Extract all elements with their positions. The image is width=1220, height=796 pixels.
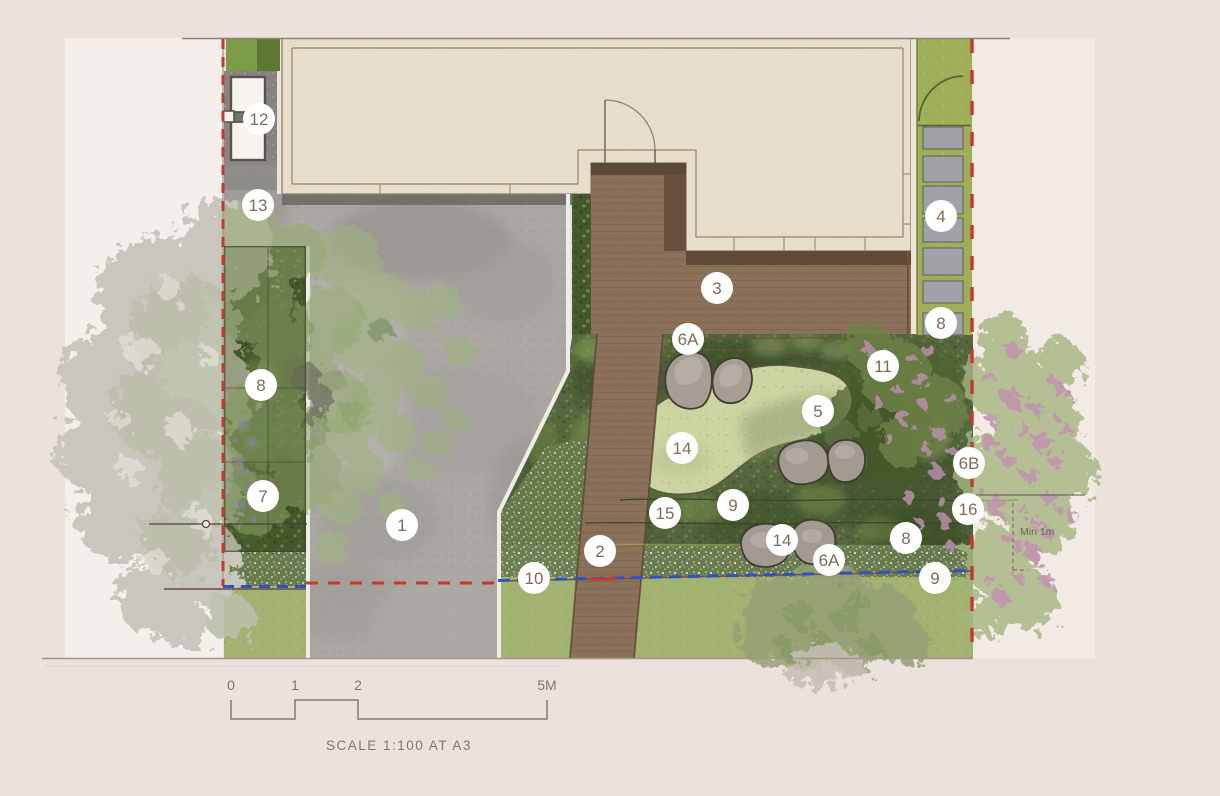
svg-text:12: 12 (250, 110, 269, 129)
svg-text:5: 5 (813, 402, 822, 421)
svg-text:8: 8 (901, 529, 910, 548)
svg-text:9: 9 (728, 496, 737, 515)
svg-text:SCALE 1:100 AT A3: SCALE 1:100 AT A3 (326, 738, 472, 753)
svg-text:14: 14 (773, 531, 792, 550)
svg-text:7: 7 (258, 487, 267, 506)
svg-text:2: 2 (354, 677, 362, 693)
svg-text:5M: 5M (537, 677, 556, 693)
svg-text:6A: 6A (678, 330, 699, 349)
svg-text:8: 8 (936, 314, 945, 333)
svg-text:1: 1 (291, 677, 299, 693)
svg-text:15: 15 (656, 504, 675, 523)
svg-text:6B: 6B (959, 454, 980, 473)
svg-text:1: 1 (397, 516, 406, 535)
svg-text:14: 14 (673, 439, 692, 458)
svg-text:4: 4 (936, 207, 945, 226)
svg-text:2: 2 (595, 542, 604, 561)
svg-text:6A: 6A (819, 551, 840, 570)
svg-text:16: 16 (959, 500, 978, 519)
svg-text:10: 10 (525, 569, 544, 588)
svg-text:3: 3 (712, 279, 721, 298)
svg-text:Min 1m: Min 1m (1020, 526, 1055, 538)
svg-text:13: 13 (249, 196, 268, 215)
svg-text:11: 11 (874, 357, 892, 376)
svg-text:0: 0 (227, 677, 235, 693)
svg-text:9: 9 (930, 569, 939, 588)
svg-text:8: 8 (256, 376, 265, 395)
